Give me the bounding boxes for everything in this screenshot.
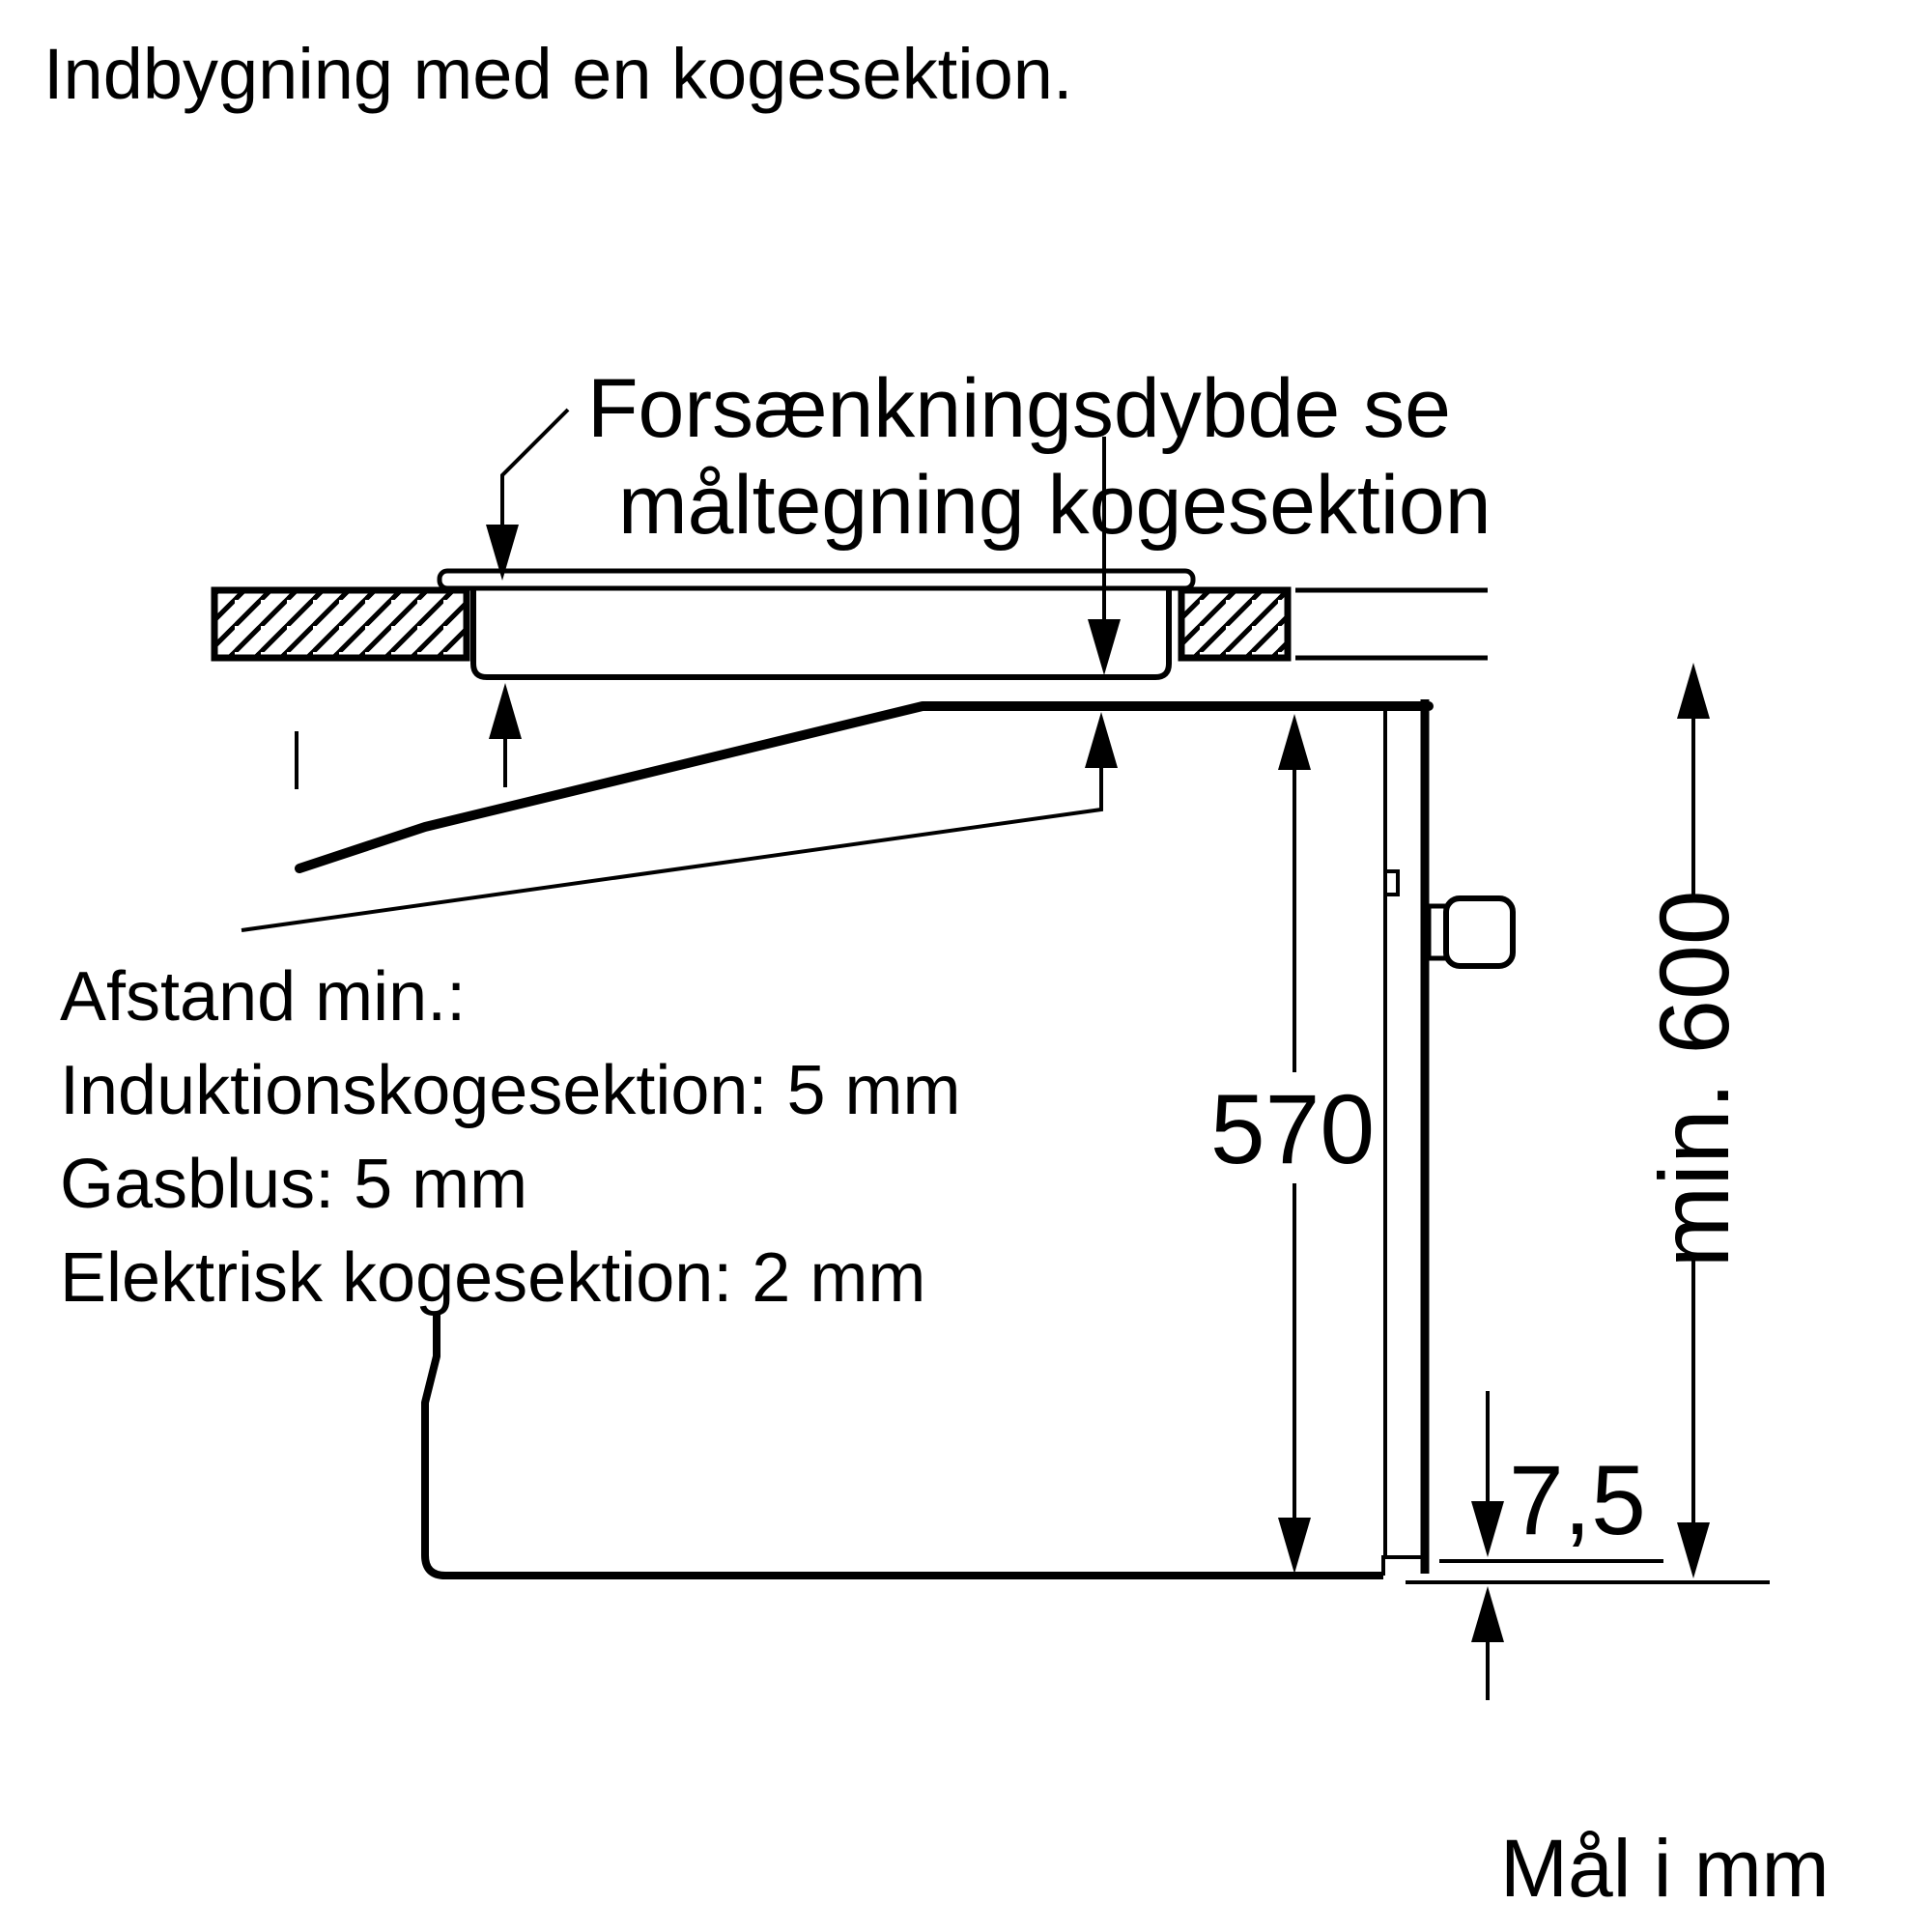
- installation-diagram-page: 570 min. 600 7,5 Indbygning med en koges…: [0, 0, 1932, 1932]
- clearance-arrow-under-tub: [489, 683, 522, 787]
- dimension-570: 570: [1210, 714, 1375, 1574]
- dimension-7-5-label: 7,5: [1509, 1445, 1646, 1555]
- dimension-min-600: min. 600: [1639, 663, 1749, 1578]
- clearance-heading: Afstand min.:: [60, 958, 466, 1036]
- clearance-leader: [241, 712, 1118, 930]
- dimension-7-5: 7,5: [1406, 1391, 1770, 1700]
- page-title: Indbygning med en kogesektion.: [43, 34, 1073, 114]
- clearance-item-gas: Gasblus: 5 mm: [60, 1146, 527, 1223]
- oven-control-knob: [1429, 898, 1513, 966]
- arrow-down-icon: [1471, 1501, 1504, 1557]
- hob-glass-top: [440, 571, 1193, 588]
- clearance-text-block: Afstand min.: Induktionskogesektion: 5 m…: [60, 958, 960, 1317]
- oven-installation-diagram: 570 min. 600 7,5 Indbygning med en koges…: [0, 0, 1932, 1932]
- arrow-up-icon: [489, 683, 522, 739]
- worktop-right-section: [1181, 590, 1488, 658]
- arrow-up-icon: [1278, 714, 1311, 770]
- dimension-570-label: 570: [1210, 1074, 1375, 1184]
- callout-line-1: Forsænkningsdybde se: [587, 362, 1451, 455]
- arrow-down-icon: [1278, 1518, 1311, 1574]
- arrow-up-icon: [1471, 1586, 1504, 1642]
- oven-door-bottom-step: [1383, 1557, 1421, 1576]
- oven-body-bottom: [425, 1314, 1383, 1576]
- callout-line-2: måltegning kogesektion: [618, 459, 1492, 552]
- arrow-up-icon: [1677, 663, 1710, 719]
- arrow-up-icon: [1085, 712, 1118, 768]
- recess-depth-callout: Forsænkningsdybde se måltegning kogesekt…: [587, 362, 1492, 552]
- hob-recessed-tub: [473, 588, 1169, 677]
- dimension-min-600-label: min. 600: [1639, 890, 1749, 1267]
- units-note: Mål i mm: [1500, 1823, 1830, 1914]
- clearance-item-induction: Induktionskogesektion: 5 mm: [60, 1052, 960, 1129]
- worktop-left-section: [214, 590, 467, 658]
- arrow-down-icon: [1677, 1522, 1710, 1578]
- recess-depth-leader-left: [486, 410, 568, 581]
- clearance-item-electric: Elektrisk kogesektion: 2 mm: [60, 1239, 925, 1317]
